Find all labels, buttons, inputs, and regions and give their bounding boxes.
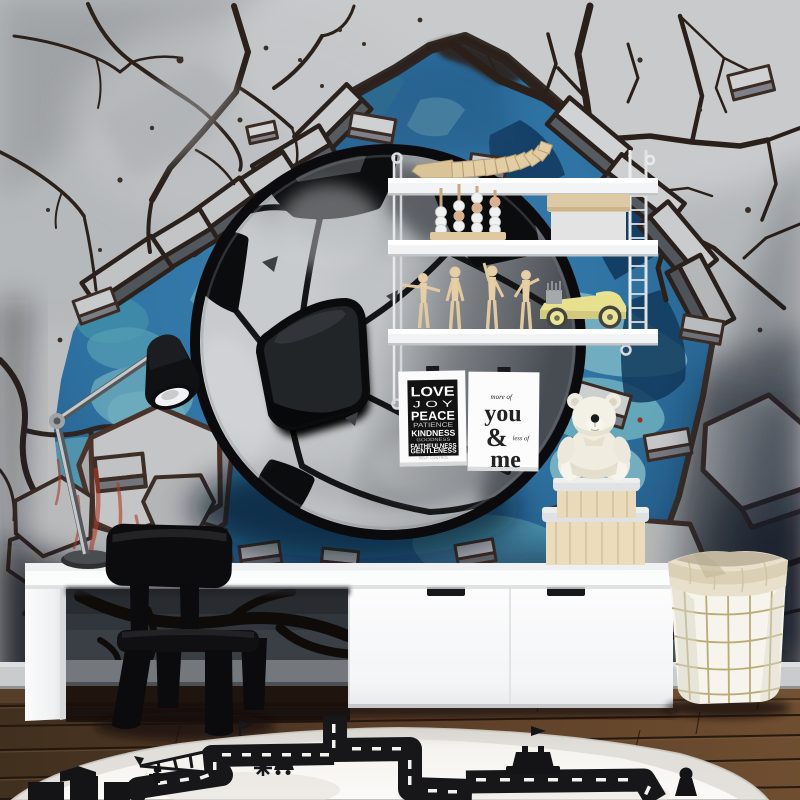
svg-text:GOODNESS: GOODNESS [416,437,450,443]
svg-text:more of: more of [491,393,513,401]
svg-text:J O Y: J O Y [413,399,453,410]
svg-text:SELF CONTROL: SELF CONTROL [419,455,450,461]
svg-text:less of: less of [513,435,531,442]
svg-text:LOVE: LOVE [410,384,454,400]
svg-text:me: me [490,447,521,473]
